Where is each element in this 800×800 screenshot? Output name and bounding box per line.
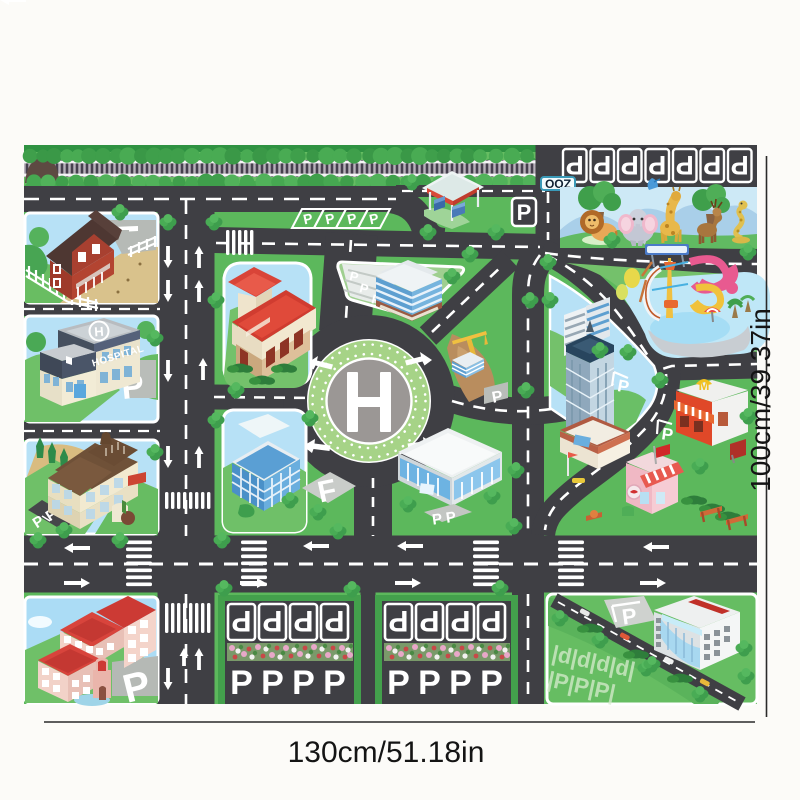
svg-text:P: P: [388, 604, 408, 637]
svg-text:P: P: [517, 200, 532, 225]
svg-text:P: P: [230, 664, 253, 702]
svg-text:P: P: [419, 604, 439, 637]
svg-text:P: P: [323, 664, 346, 702]
svg-text:P: P: [418, 664, 441, 702]
svg-text:100cm/39.37in: 100cm/39.37in: [745, 308, 776, 492]
svg-text:P: P: [449, 664, 472, 702]
svg-text:P: P: [292, 664, 315, 702]
svg-text:P: P: [481, 604, 501, 637]
svg-text:130cm/51.18in: 130cm/51.18in: [288, 736, 485, 769]
svg-text:P: P: [231, 604, 251, 637]
svg-text:P: P: [480, 664, 503, 702]
svg-text:P: P: [293, 604, 313, 637]
svg-text:P: P: [262, 604, 282, 637]
svg-text:M: M: [699, 378, 710, 393]
svg-text:P: P: [731, 150, 749, 180]
svg-text:P: P: [648, 150, 666, 180]
svg-text:P P: P P: [431, 509, 457, 529]
svg-text:P: P: [324, 604, 344, 637]
svg-text:P: P: [261, 664, 284, 702]
svg-text:P: P: [621, 150, 639, 180]
svg-text:P: P: [387, 664, 410, 702]
svg-text:H: H: [94, 324, 104, 340]
svg-text:P: P: [676, 150, 694, 180]
svg-text:P: P: [566, 150, 584, 180]
svg-text:P: P: [450, 604, 470, 637]
svg-text:P: P: [703, 150, 721, 180]
svg-text:P: P: [593, 150, 611, 180]
